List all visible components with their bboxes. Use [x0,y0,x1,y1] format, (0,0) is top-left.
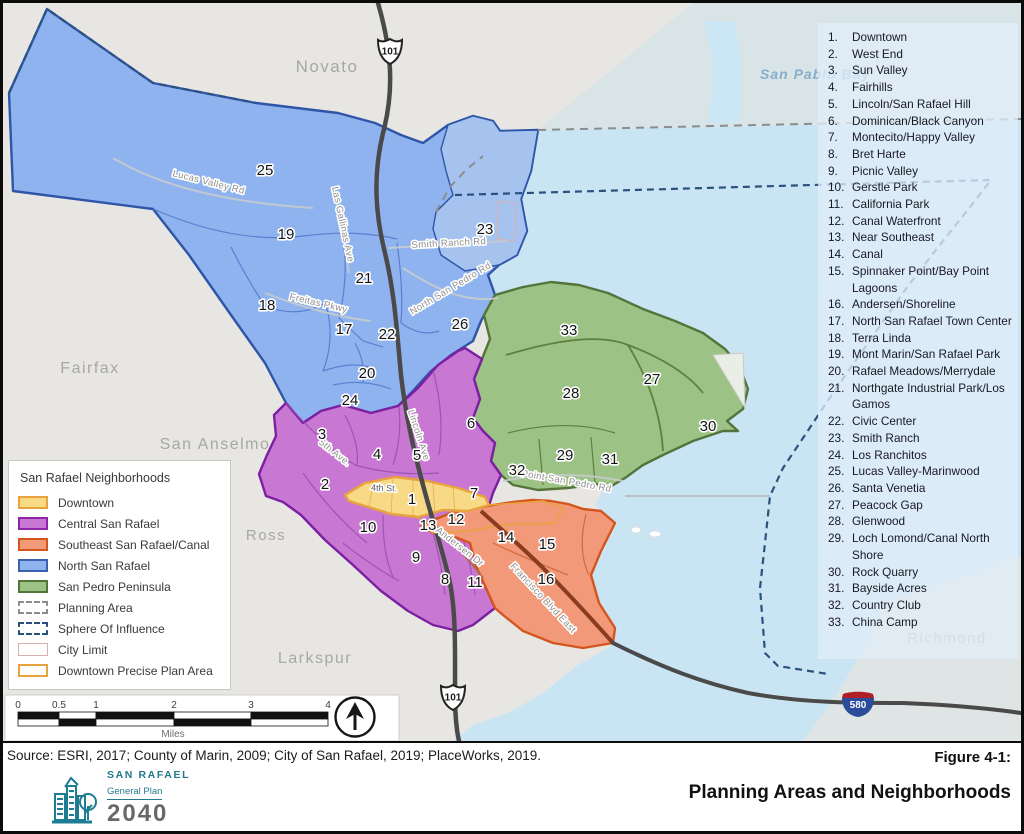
neighborhood-number: 11 [467,574,483,591]
neighborhood-number: 18 [259,297,276,314]
neighborhood-number: 30 [700,418,717,435]
neighborhood-list-label: Northgate Industrial Park/Los Gamos [852,380,1014,413]
neighborhood-list-item: 30.Rock Quarry [828,564,1014,581]
scalebar-tick: 3 [248,700,254,711]
neighborhood-list-number: 5. [828,96,852,113]
neighborhood-list-item: 6.Dominican/Black Canyon [828,113,1014,130]
neighborhood-list-label: West End [852,46,1014,63]
neighborhood-list-label: Spinnaker Point/Bay Point Lagoons [852,263,1014,296]
neighborhood-list-label: Fairhills [852,79,1014,96]
neighborhood-list-item: 19.Mont Marin/San Rafael Park [828,346,1014,363]
legend-label: Central San Rafael [58,517,159,531]
neighborhood-number: 4 [373,446,381,463]
neighborhood-list-number: 12. [828,213,852,230]
neighborhood-number: 13 [420,517,437,534]
legend-swatch [18,559,48,572]
neighborhood-number: 7 [470,485,478,502]
neighborhood-list-item: 8.Bret Harte [828,146,1014,163]
scalebar-tick: 2 [171,700,177,711]
neighborhood-list-label: Near Southeast [852,229,1014,246]
city-logo-icon [51,773,97,827]
neighborhood-list-number: 4. [828,79,852,96]
neighborhood-list-item: 33.China Camp [828,614,1014,631]
neighborhood-list-label: Canal [852,246,1014,263]
neighborhood-list-label: Terra Linda [852,330,1014,347]
neighborhood-list-number: 6. [828,113,852,130]
legend-swatch [18,496,48,509]
legend-label: Sphere Of Influence [58,622,165,636]
neighborhood-list-label: Canal Waterfront [852,213,1014,230]
neighborhood-number: 22 [379,326,396,343]
legend-item: Sphere Of Influence [18,618,222,639]
neighborhood-list-label: Rafael Meadows/Merrydale [852,363,1014,380]
shield-number: 101 [382,47,399,58]
legend-label: Southeast San Rafael/Canal [58,538,209,552]
neighborhood-list-item: 29.Loch Lomond/Canal North Shore [828,530,1014,563]
neighborhood-list-item: 3.Sun Valley [828,62,1014,79]
neighborhood-list-item: 11.California Park [828,196,1014,213]
neighborhood-list-number: 1. [828,29,852,46]
neighborhood-number: 17 [336,321,353,338]
neighborhood-number: 24 [342,392,359,409]
map-legend: San Rafael Neighborhoods DowntownCentral… [8,460,231,690]
neighborhood-number: 1 [408,491,416,508]
marin-island [649,531,661,537]
neighborhood-list-label: Mont Marin/San Rafael Park [852,346,1014,363]
neighborhood-list-item: 16.Andersen/Shoreline [828,296,1014,313]
neighborhood-list-number: 33. [828,614,852,631]
neighborhood-list-label: Country Club [852,597,1014,614]
neighborhood-number: 23 [477,221,494,238]
neighborhood-list-number: 19. [828,346,852,363]
svg-text:Miles: Miles [161,729,184,740]
figure-label: Figure 4-1: [689,749,1011,766]
neighborhood-list-number: 23. [828,430,852,447]
neighborhood-list-number: 14. [828,246,852,263]
neighborhood-number: 28 [563,385,580,402]
neighborhood-number: 5 [413,447,421,464]
neighborhood-list-label: Sun Valley [852,62,1014,79]
neighborhood-list-number: 32. [828,597,852,614]
city-label: Larkspur [278,650,352,667]
neighborhood-list-number: 27. [828,497,852,514]
neighborhood-list-item: 9.Picnic Valley [828,163,1014,180]
neighborhood-list-label: Bayside Acres [852,580,1014,597]
legend-label: Downtown [58,496,114,510]
neighborhood-number: 20 [359,365,376,382]
neighborhood-number: 19 [278,226,295,243]
us-route-shield: 101 [441,685,465,710]
neighborhood-list-item: 32.Country Club [828,597,1014,614]
neighborhood-list-number: 28. [828,513,852,530]
neighborhood-number: 29 [557,447,574,464]
neighborhood-number: 3 [318,426,326,443]
neighborhood-list-item: 10.Gerstle Park [828,179,1014,196]
legend-swatch [18,538,48,551]
us-route-shield: 101 [378,39,402,64]
legend-label: San Pedro Peninsula [58,580,171,594]
legend-item: Downtown [18,492,222,513]
neighborhood-list-label: Loch Lomond/Canal North Shore [852,530,1014,563]
neighborhood-list-item: 1.Downtown [828,29,1014,46]
neighborhood-list-item: 13.Near Southeast [828,229,1014,246]
logo-subtitle: General Plan [107,786,162,800]
neighborhood-list-label: Picnic Valley [852,163,1014,180]
neighborhood-number: 15 [539,536,556,553]
legend-item: City Limit [18,639,222,660]
neighborhood-list-item: 24.Los Ranchitos [828,447,1014,464]
neighborhood-list-item: 20.Rafael Meadows/Merrydale [828,363,1014,380]
logo-city-name: SAN RAFAEL [107,769,190,781]
neighborhood-list-label: Civic Center [852,413,1014,430]
neighborhood-list-number: 2. [828,46,852,63]
map-area: San Pablo Bay NovatoFairfaxSan AnselmoRo… [3,3,1021,741]
legend-swatch [18,622,48,635]
neighborhood-list-item: 23.Smith Ranch [828,430,1014,447]
neighborhood-list-item: 21.Northgate Industrial Park/Los Gamos [828,380,1014,413]
neighborhood-list-item: 15.Spinnaker Point/Bay Point Lagoons [828,263,1014,296]
neighborhood-list-number: 18. [828,330,852,347]
legend-swatch [18,601,48,614]
neighborhood-list-item: 25.Lucas Valley-Marinwood [828,463,1014,480]
neighborhood-number: 8 [441,571,449,588]
neighborhood-list-label: California Park [852,196,1014,213]
legend-label: North San Rafael [58,559,150,573]
neighborhood-list-label: Downtown [852,29,1014,46]
legend-title: San Rafael Neighborhoods [20,471,222,485]
legend-swatch [18,517,48,530]
footer: Source: ESRI, 2017; County of Marin, 200… [3,741,1021,831]
marin-island [631,527,641,533]
neighborhood-number: 32 [509,462,526,479]
city-label: San Anselmo [160,436,271,453]
neighborhood-number: 12 [448,511,465,528]
shield-number: 101 [445,693,462,704]
neighborhood-list-item: 17.North San Rafael Town Center [828,313,1014,330]
neighborhood-list-label: Dominican/Black Canyon [852,113,1014,130]
city-label: Novato [296,57,359,76]
neighborhood-number: 27 [644,371,661,388]
scalebar-tick: 1 [93,700,99,711]
neighborhood-list-number: 22. [828,413,852,430]
neighborhood-number: 33 [561,322,578,339]
scalebar-tick: 0 [15,700,21,711]
neighborhood-list-label: Montecito/Happy Valley [852,129,1014,146]
legend-item: Southeast San Rafael/Canal [18,534,222,555]
neighborhood-list-number: 30. [828,564,852,581]
general-plan-logo: SAN RAFAEL General Plan 2040 [51,769,190,827]
neighborhood-list-item: 14.Canal [828,246,1014,263]
source-text: Source: ESRI, 2017; County of Marin, 200… [7,748,541,763]
neighborhood-list-number: 9. [828,163,852,180]
neighborhood-list-number: 26. [828,480,852,497]
neighborhood-list-number: 31. [828,580,852,597]
neighborhood-list-item: 5.Lincoln/San Rafael Hill [828,96,1014,113]
neighborhood-number: 10 [360,519,377,536]
neighborhood-list-number: 3. [828,62,852,79]
neighborhood-list-number: 25. [828,463,852,480]
neighborhood-number: 2 [321,476,329,493]
neighborhood-list-label: China Camp [852,614,1014,631]
neighborhood-list-item: 26.Santa Venetia [828,480,1014,497]
neighborhood-list-label: North San Rafael Town Center [852,313,1014,330]
neighborhood-list-label: Rock Quarry [852,564,1014,581]
city-label: Ross [246,527,286,544]
legend-swatch [18,664,48,677]
neighborhood-list-panel: 1.Downtown2.West End3.Sun Valley4.Fairhi… [818,23,1018,659]
neighborhood-list-label: Santa Venetia [852,480,1014,497]
neighborhood-list-number: 17. [828,313,852,330]
figure-title: Planning Areas and Neighborhoods [689,782,1011,804]
neighborhood-list-number: 13. [828,229,852,246]
neighborhood-list-number: 29. [828,530,852,547]
neighborhood-list-number: 8. [828,146,852,163]
legend-label: City Limit [58,643,107,657]
neighborhood-list-number: 20. [828,363,852,380]
north-arrow-icon [336,698,375,737]
legend-label: Planning Area [58,601,133,615]
neighborhood-list-label: Glenwood [852,513,1014,530]
neighborhood-list-item: 22.Civic Center [828,413,1014,430]
neighborhood-list-number: 16. [828,296,852,313]
neighborhood-list-number: 10. [828,179,852,196]
neighborhood-number: 25 [257,162,274,179]
neighborhood-list-number: 7. [828,129,852,146]
neighborhood-list-item: 27.Peacock Gap [828,497,1014,514]
neighborhood-list-label: Peacock Gap [852,497,1014,514]
figure-frame: San Pablo Bay NovatoFairfaxSan AnselmoRo… [0,0,1024,834]
neighborhood-number: 26 [452,316,469,333]
neighborhood-list-number: 24. [828,447,852,464]
neighborhood-list-number: 11. [828,196,852,213]
shield-number: 580 [850,700,867,711]
neighborhood-number: 14 [498,529,515,546]
road-label: 4th St. [371,483,397,494]
legend-item: Planning Area [18,597,222,618]
neighborhood-list-label: Gerstle Park [852,179,1014,196]
city-label: Fairfax [60,360,119,377]
neighborhood-list-label: Andersen/Shoreline [852,296,1014,313]
legend-swatch [18,580,48,593]
neighborhood-list-label: Bret Harte [852,146,1014,163]
legend-item: North San Rafael [18,555,222,576]
neighborhood-number: 6 [467,415,475,432]
legend-swatch [18,643,48,656]
legend-label: Downtown Precise Plan Area [58,664,213,678]
legend-item: San Pedro Peninsula [18,576,222,597]
scalebar: 00.51234 Miles [5,695,399,741]
logo-year: 2040 [107,803,190,825]
neighborhood-list-item: 4.Fairhills [828,79,1014,96]
neighborhood-list-item: 28.Glenwood [828,513,1014,530]
neighborhood-list-item: 2.West End [828,46,1014,63]
scalebar-tick: 4 [325,700,331,711]
neighborhood-list-number: 21. [828,380,852,397]
neighborhood-list-label: Smith Ranch [852,430,1014,447]
neighborhood-number: 31 [602,451,619,468]
scalebar-tick: 0.5 [52,700,66,711]
neighborhood-number: 21 [356,270,373,287]
legend-item: Downtown Precise Plan Area [18,660,222,681]
neighborhood-list-item: 18.Terra Linda [828,330,1014,347]
legend-item: Central San Rafael [18,513,222,534]
neighborhood-list-item: 12.Canal Waterfront [828,213,1014,230]
neighborhood-number: 9 [412,549,420,566]
neighborhood-list-label: Lucas Valley-Marinwood [852,463,1014,480]
neighborhood-list-item: 31.Bayside Acres [828,580,1014,597]
neighborhood-list-label: Los Ranchitos [852,447,1014,464]
neighborhood-number: 16 [538,571,555,588]
neighborhood-list-item: 7.Montecito/Happy Valley [828,129,1014,146]
neighborhood-list-label: Lincoln/San Rafael Hill [852,96,1014,113]
neighborhood-list-number: 15. [828,263,852,280]
